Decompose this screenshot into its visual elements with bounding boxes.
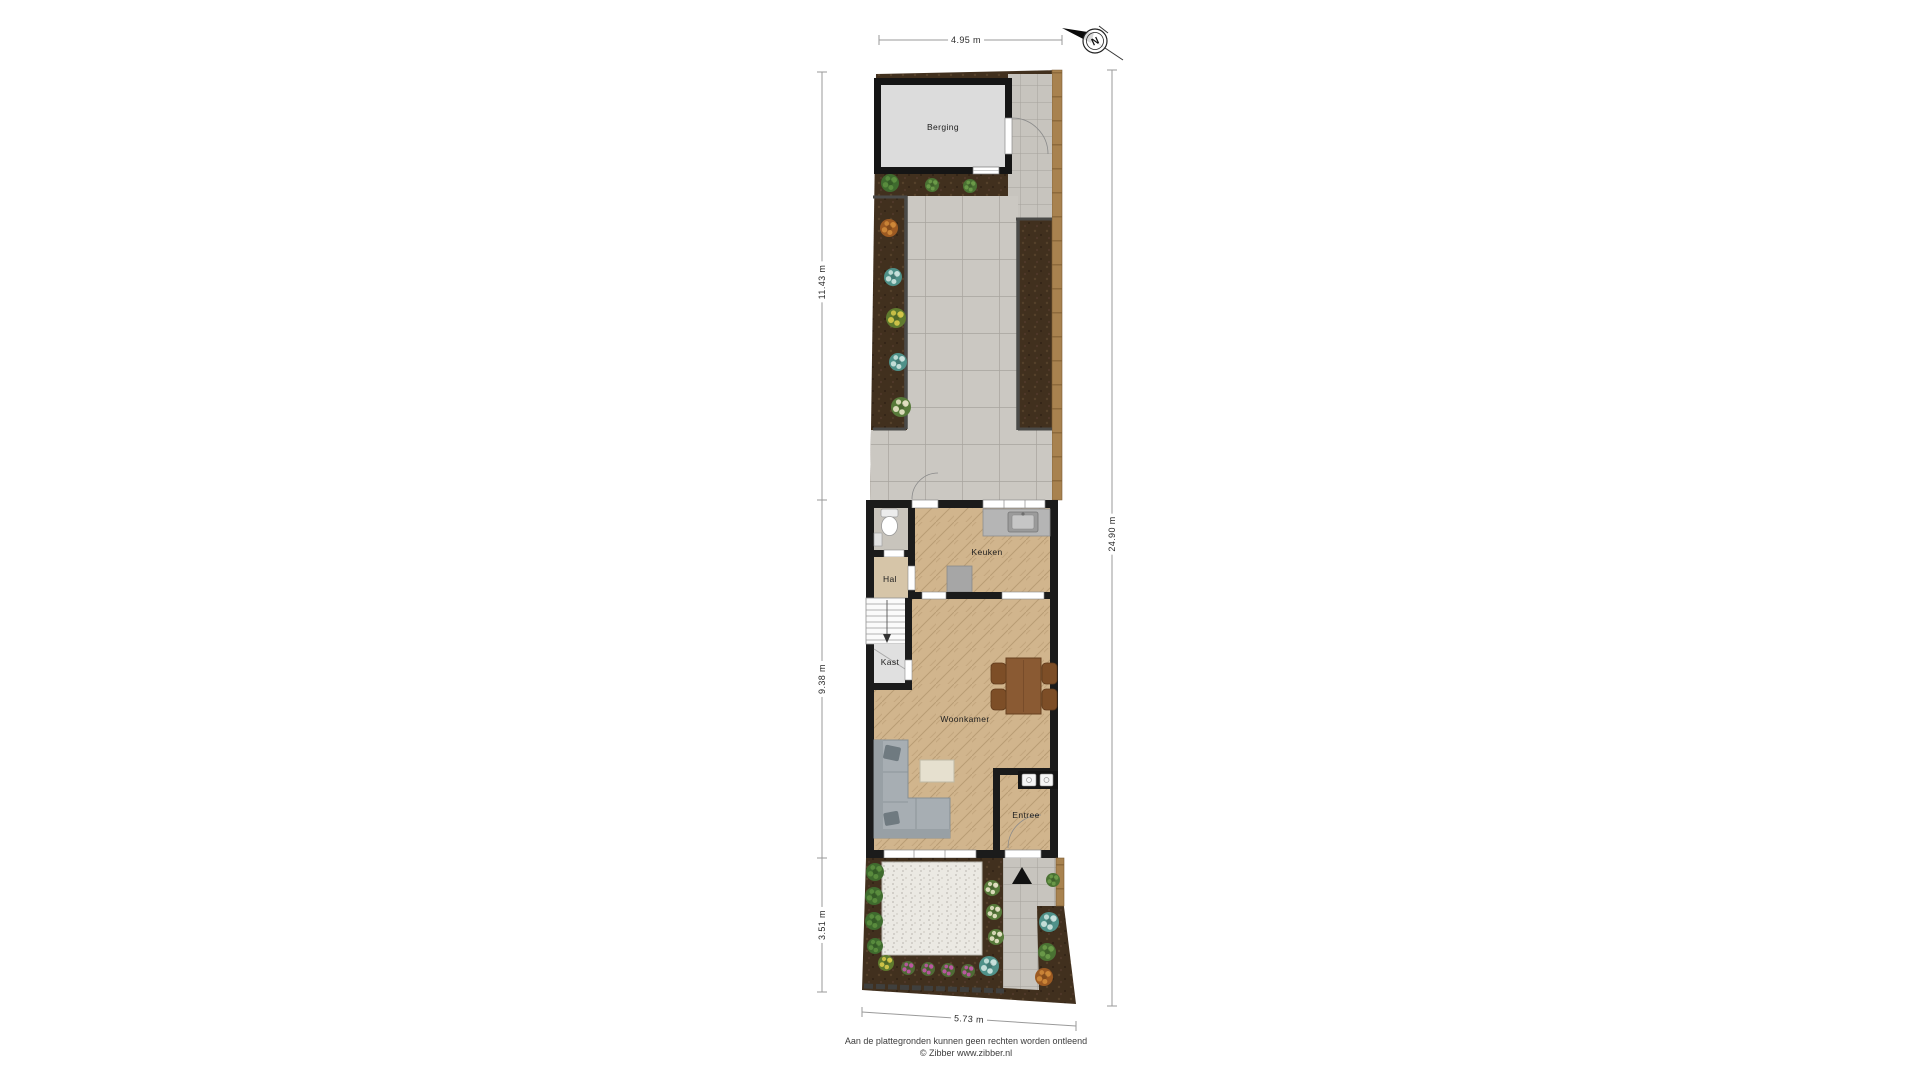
- room-label-berging: Berging: [927, 122, 959, 132]
- plant-part: [990, 936, 995, 941]
- kitchen-window: [983, 500, 1045, 508]
- floorplan-sheet: N Berging Keuken Hal Kast Woonkamer Entr…: [0, 0, 1920, 1080]
- plant-part: [882, 227, 887, 232]
- plant-part: [1037, 976, 1042, 981]
- plant-part: [888, 185, 893, 190]
- plant-pink: [921, 962, 935, 976]
- hal-door: [908, 566, 915, 590]
- plant-part: [1052, 882, 1056, 886]
- plant-part: [891, 274, 896, 279]
- plant-part: [969, 188, 973, 192]
- sofa-backrest-left: [874, 740, 883, 838]
- plant-part: [1041, 921, 1047, 927]
- plant-part: [967, 973, 971, 977]
- dim-label-total-depth: 24.90 m: [1107, 513, 1117, 554]
- plant-part: [894, 315, 900, 321]
- plant-part: [987, 968, 993, 974]
- meter-appliance-1: [1022, 774, 1036, 786]
- plant-part: [930, 183, 934, 187]
- lower-terrace-paving: [870, 430, 1052, 500]
- plant-part: [926, 967, 930, 971]
- plant-part: [888, 317, 894, 323]
- dining-chair-4: [1042, 689, 1057, 710]
- plant-bush: [963, 179, 977, 193]
- room-label-woonkamer: Woonkamer: [940, 714, 989, 724]
- plant-part: [946, 968, 950, 972]
- plant-part: [994, 934, 999, 939]
- plant-teal: [884, 268, 902, 286]
- dining-chair-1: [991, 663, 1006, 684]
- plant-part: [891, 361, 896, 366]
- plant-part: [885, 965, 889, 969]
- plant-part: [1045, 954, 1050, 959]
- plant-bush: [925, 178, 939, 192]
- room-label-kast: Kast: [881, 657, 900, 667]
- plant-part: [896, 364, 901, 369]
- plant-part: [993, 914, 997, 918]
- north-compass: N: [1062, 26, 1123, 60]
- plant-part: [927, 971, 931, 975]
- plant-part: [872, 918, 877, 923]
- plant-bush: [1038, 943, 1056, 961]
- house: [866, 500, 1058, 858]
- dim-label-front-garden-depth: 3.51 m: [817, 907, 827, 943]
- plant-part: [922, 968, 926, 972]
- kitchen-living-opening: [1002, 592, 1044, 599]
- sofa-pillow2: [883, 811, 900, 826]
- plant-part: [968, 184, 972, 188]
- plant-part: [872, 893, 877, 898]
- plant-fern: [865, 887, 883, 905]
- dim-label-house-depth: 9.38 m: [817, 661, 827, 697]
- plant-yellow: [886, 308, 906, 328]
- front-door: [1005, 850, 1041, 858]
- plant-white: [988, 929, 1004, 945]
- plant-part: [899, 404, 905, 410]
- plant-part: [891, 279, 896, 284]
- plant-fern: [865, 912, 883, 930]
- plant-part: [962, 970, 966, 974]
- plant-part: [1042, 974, 1047, 979]
- meter-appliance-2: [1040, 774, 1053, 786]
- plant-part: [886, 276, 891, 281]
- dim-label-top-width: 4.95 m: [948, 35, 984, 45]
- toilet-bowl: [882, 517, 898, 536]
- room-label-hal: Hal: [883, 574, 897, 584]
- plant-part: [1045, 949, 1050, 954]
- plant-part: [981, 965, 987, 971]
- plant-yellow: [878, 955, 894, 971]
- floorplan-drawing: N: [0, 0, 1920, 1080]
- plant-part: [872, 898, 877, 903]
- plant-part: [906, 966, 910, 970]
- toilet-door: [884, 550, 904, 557]
- plant-part: [880, 962, 885, 967]
- plant-part: [883, 182, 888, 187]
- back-door: [912, 500, 938, 508]
- plant-part: [873, 869, 878, 874]
- entree-wall-left: [993, 768, 1000, 858]
- sofa-backrest-bottom: [883, 829, 950, 838]
- plant-part: [874, 948, 878, 952]
- plant-part: [995, 939, 999, 943]
- plant-part: [907, 970, 911, 974]
- plant-part: [872, 923, 877, 928]
- plant-white: [984, 880, 1000, 896]
- plant-part: [1047, 879, 1051, 883]
- plant-part: [931, 187, 935, 191]
- plant-part: [893, 406, 899, 412]
- dim-label-bottom-width: 5.73 m: [951, 1013, 987, 1025]
- plant-part: [926, 184, 930, 188]
- plant-part: [887, 225, 892, 230]
- plant-part: [964, 185, 968, 189]
- plant-part: [899, 409, 905, 415]
- plant-part: [884, 960, 889, 965]
- plant-part: [991, 890, 995, 894]
- plant-fern: [867, 938, 883, 954]
- room-label-entree: Entree: [1012, 810, 1039, 820]
- plant-part: [873, 943, 878, 948]
- plant-part: [1047, 919, 1053, 925]
- plant-fern: [866, 863, 884, 881]
- plant-part: [987, 963, 993, 969]
- kitchen-sink-basin: [1012, 515, 1034, 529]
- plant-pink: [941, 963, 955, 977]
- plant-part: [1040, 951, 1045, 956]
- dim-label-garden-depth: 11.43 m: [817, 262, 827, 303]
- plant-part: [986, 887, 991, 892]
- room-label-keuken: Keuken: [971, 547, 1002, 557]
- living-room-window: [884, 850, 976, 858]
- plant-part: [887, 230, 892, 235]
- plant-part: [942, 969, 946, 973]
- toilet-wall-right: [908, 508, 915, 557]
- plant-fern: [881, 174, 899, 192]
- plant-part: [894, 320, 900, 326]
- kast-door: [905, 660, 912, 680]
- plant-part: [888, 180, 893, 185]
- plant-part: [966, 969, 970, 973]
- plant-teal: [889, 353, 907, 371]
- plant-part: [947, 972, 951, 976]
- berging-door: [1005, 118, 1012, 154]
- plant-pink: [961, 964, 975, 978]
- plant-teal: [1039, 912, 1059, 932]
- toilet-cistern: [881, 509, 898, 517]
- plant-part: [992, 909, 997, 914]
- plant-bush: [1046, 873, 1060, 887]
- garden-path-paving: [907, 196, 1018, 430]
- gravel-patio: [882, 862, 982, 955]
- coffee-table: [920, 760, 954, 782]
- plant-part: [867, 895, 872, 900]
- plant-part: [1051, 878, 1055, 882]
- footer-disclaimer: Aan de plattegronden kunnen geen rechten…: [845, 1036, 1087, 1046]
- back-garden: [870, 70, 1062, 500]
- dining-chair-2: [991, 689, 1006, 710]
- plant-part: [896, 359, 901, 364]
- plant-orange: [1035, 968, 1053, 986]
- plant-white: [986, 904, 1002, 920]
- plant-part: [868, 871, 873, 876]
- plant-part: [869, 945, 874, 950]
- plant-white: [891, 397, 911, 417]
- plant-teal: [979, 956, 999, 976]
- kitchen-faucet: [1021, 512, 1024, 515]
- right-fence: [1052, 70, 1062, 500]
- kitchen-living-door: [922, 592, 946, 599]
- plant-part: [1047, 924, 1053, 930]
- plant-part: [867, 920, 872, 925]
- plant-part: [873, 874, 878, 879]
- staircase: [866, 598, 908, 644]
- plant-part: [902, 967, 906, 971]
- footer-copyright: © Zibber www.zibber.nl: [920, 1048, 1012, 1058]
- toilet-sink: [874, 533, 882, 546]
- dining-chair-3: [1042, 663, 1057, 684]
- plant-part: [988, 911, 993, 916]
- plant-orange: [880, 219, 898, 237]
- kast-wall-bottom: [866, 683, 912, 690]
- plant-part: [1042, 979, 1047, 984]
- plant-part: [990, 885, 995, 890]
- kitchen-island: [947, 566, 972, 592]
- plant-pink: [901, 961, 915, 975]
